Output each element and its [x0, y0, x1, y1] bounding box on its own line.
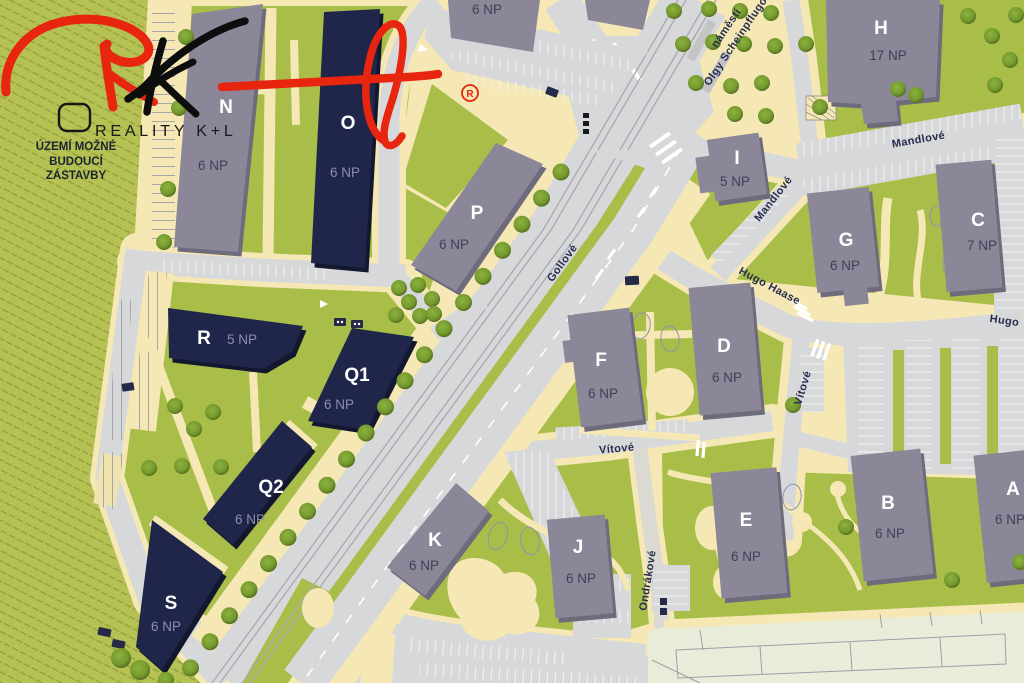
svg-text:BUDOUCÍ: BUDOUCÍ	[49, 155, 103, 168]
svg-text:6 NP: 6 NP	[731, 549, 761, 564]
svg-text:A: A	[1006, 479, 1020, 500]
svg-text:G: G	[839, 230, 854, 251]
svg-text:B: B	[881, 493, 895, 514]
svg-text:H: H	[874, 18, 888, 39]
svg-text:6 NP: 6 NP	[198, 158, 228, 173]
svg-text:6 NP: 6 NP	[235, 512, 265, 527]
svg-text:6 NP: 6 NP	[439, 237, 469, 252]
svg-text:6 NP: 6 NP	[472, 2, 502, 17]
svg-text:6 NP: 6 NP	[995, 512, 1024, 527]
svg-text:ZÁSTAVBY: ZÁSTAVBY	[46, 169, 107, 182]
svg-text:R: R	[197, 328, 211, 349]
svg-text:6 NP: 6 NP	[875, 526, 905, 541]
svg-text:Q1: Q1	[344, 365, 370, 386]
svg-text:K: K	[428, 530, 442, 551]
svg-text:5 NP: 5 NP	[720, 174, 750, 189]
svg-text:ÚZEMÍ MOŽNÉ: ÚZEMÍ MOŽNÉ	[36, 140, 117, 153]
svg-text:REALITY K+L: REALITY K+L	[95, 123, 237, 140]
svg-text:I: I	[734, 148, 739, 169]
svg-text:S: S	[165, 593, 178, 614]
svg-text:6 NP: 6 NP	[409, 558, 439, 573]
svg-text:N: N	[219, 97, 233, 118]
svg-text:17 NP: 17 NP	[869, 48, 907, 63]
svg-text:Q2: Q2	[258, 477, 283, 498]
svg-text:R: R	[466, 89, 474, 100]
svg-text:6 NP: 6 NP	[830, 258, 860, 273]
svg-text:6 NP: 6 NP	[712, 370, 742, 385]
svg-text:5 NP: 5 NP	[227, 332, 257, 347]
svg-text:P: P	[471, 203, 484, 224]
svg-text:E: E	[740, 510, 753, 531]
svg-text:6 NP: 6 NP	[588, 386, 618, 401]
svg-text:D: D	[717, 336, 731, 357]
svg-text:C: C	[971, 210, 985, 231]
svg-text:O: O	[341, 113, 356, 134]
svg-text:6 NP: 6 NP	[324, 397, 354, 412]
svg-text:7 NP: 7 NP	[967, 238, 997, 253]
svg-text:6 NP: 6 NP	[151, 619, 181, 634]
svg-text:6 NP: 6 NP	[330, 165, 360, 180]
svg-text:6 NP: 6 NP	[566, 571, 596, 586]
svg-text:J: J	[573, 537, 584, 558]
svg-text:F: F	[595, 350, 607, 371]
